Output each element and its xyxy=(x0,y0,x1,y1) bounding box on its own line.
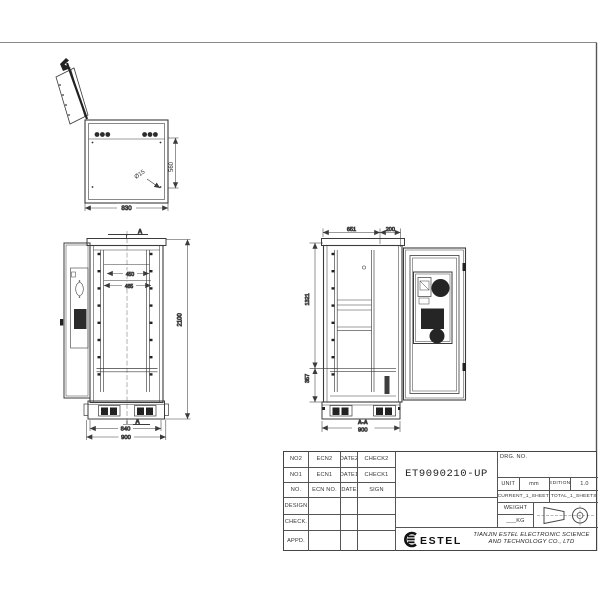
dim-900-front-text: 900 xyxy=(121,435,131,441)
rev-sign-header: SIGN xyxy=(358,483,396,498)
design-ecn-cell xyxy=(309,498,341,515)
front-open-door xyxy=(60,243,90,398)
drawing-number-cell: ET9090210-UP xyxy=(396,452,498,498)
weight-value: ___KG xyxy=(498,515,534,528)
drg-no-cell: DRG. NO. xyxy=(498,452,598,478)
company-name-line2: AND TECHNOLOGY CO., LTD xyxy=(468,539,595,546)
design-sign-cell xyxy=(358,498,396,515)
drawing-number: ET9090210-UP xyxy=(405,468,488,480)
dim-200-text: 200 xyxy=(386,227,395,233)
dim-485-text: 485 xyxy=(125,284,134,290)
edition-value: 1.0 xyxy=(571,478,598,491)
rev-check2: CHECK2 xyxy=(358,452,396,468)
unit-label: UNIT xyxy=(498,478,520,491)
design-date-cell xyxy=(341,498,358,515)
door-hinge-bottom xyxy=(463,363,467,371)
front-cabinet-outline xyxy=(87,239,166,403)
section-title: A-A xyxy=(358,420,368,426)
appd-sign-cell xyxy=(358,531,396,552)
dim-hole-leader xyxy=(147,179,160,188)
appd-ecn-cell xyxy=(309,531,341,552)
check-date-cell xyxy=(341,515,358,531)
company-name-line1: TIANJIN ESTEL ELECTRONIC SCIENCE xyxy=(468,532,595,539)
side-cabinet-outline xyxy=(322,239,405,403)
front-view: A A xyxy=(60,230,191,442)
rev-ecn2: ECN2 xyxy=(309,452,341,468)
rev-no-header: NO. xyxy=(284,483,309,498)
appd-date-cell xyxy=(341,531,358,552)
dim-840-text: 840 xyxy=(121,427,131,433)
side-rack-rail xyxy=(335,250,375,392)
rev-date2: DATE2 xyxy=(341,452,358,468)
rev-check1: CHECK1 xyxy=(358,468,396,483)
rev-ecn-header: ECN NO. xyxy=(309,483,341,498)
dim-560-text: 560 xyxy=(169,161,175,172)
edition-label: EDITION xyxy=(550,478,572,491)
projection-symbol-cell xyxy=(534,503,598,528)
fan-circle-bottom xyxy=(430,329,445,344)
dim-1321-text: 1321 xyxy=(305,293,311,305)
section-letter-bottom: A xyxy=(135,420,140,426)
rev-no2: NO2 xyxy=(284,452,309,468)
dim-900-side-text: 900 xyxy=(358,428,368,434)
side-hole xyxy=(362,266,365,269)
top-view: 560 Ø15 830 xyxy=(56,58,179,212)
dim-450-text: 450 xyxy=(126,272,135,278)
check-label: CHECK. xyxy=(284,515,309,531)
company-cell: ESTEL TIANJIN ESTEL ELECTRONIC SCIENCE A… xyxy=(396,528,598,552)
door-handle xyxy=(60,319,63,326)
side-base xyxy=(322,402,401,419)
drawing-sheet: 560 Ø15 830 A xyxy=(0,0,600,600)
company-name: TIANJIN ESTEL ELECTRONIC SCIENCE AND TEC… xyxy=(468,532,598,547)
dim-hole-text: Ø15 xyxy=(134,169,147,181)
side-view: 651 200 xyxy=(305,227,466,433)
current-sheet: CURRENT_1_SHEET xyxy=(498,491,550,503)
door-hinge-top xyxy=(463,263,467,271)
dim-357-text: 357 xyxy=(305,374,311,383)
dim-651-text: 651 xyxy=(347,227,356,233)
empty-mid-cell xyxy=(396,498,498,528)
total-sheets: TOTAL_1_SHEETS xyxy=(550,491,599,503)
projection-symbol xyxy=(535,503,597,527)
rev-ecn1: ECN1 xyxy=(309,468,341,483)
check-ecn-cell xyxy=(309,515,341,531)
weight-label: WEIGHT xyxy=(498,503,534,516)
heat-exchanger xyxy=(414,272,453,344)
dim-830-text: 830 xyxy=(121,205,132,212)
cable-gland-holes xyxy=(92,132,162,188)
title-block: NO2 ECN2 DATE2 CHECK2 NO1 ECN1 DATE1 CHE… xyxy=(283,451,597,551)
rev-no1: NO1 xyxy=(284,468,309,483)
fan-circle-top xyxy=(432,279,450,297)
dim-2100 xyxy=(165,240,191,420)
estel-logo: ESTEL xyxy=(402,531,464,548)
side-component xyxy=(385,376,390,394)
appd-label: APPD. xyxy=(284,531,309,552)
logo-text: ESTEL xyxy=(420,535,462,547)
side-rail-holes xyxy=(332,253,335,376)
design-label: DESIGN xyxy=(284,498,309,515)
check-sign-cell xyxy=(358,515,396,531)
unit-value: mm xyxy=(520,478,550,491)
section-letter-top: A xyxy=(138,230,143,236)
rev-date1: DATE1 xyxy=(341,468,358,483)
front-base xyxy=(84,401,169,419)
dim-2100-text: 2100 xyxy=(178,312,184,326)
rev-date-header: DATE xyxy=(341,483,358,498)
